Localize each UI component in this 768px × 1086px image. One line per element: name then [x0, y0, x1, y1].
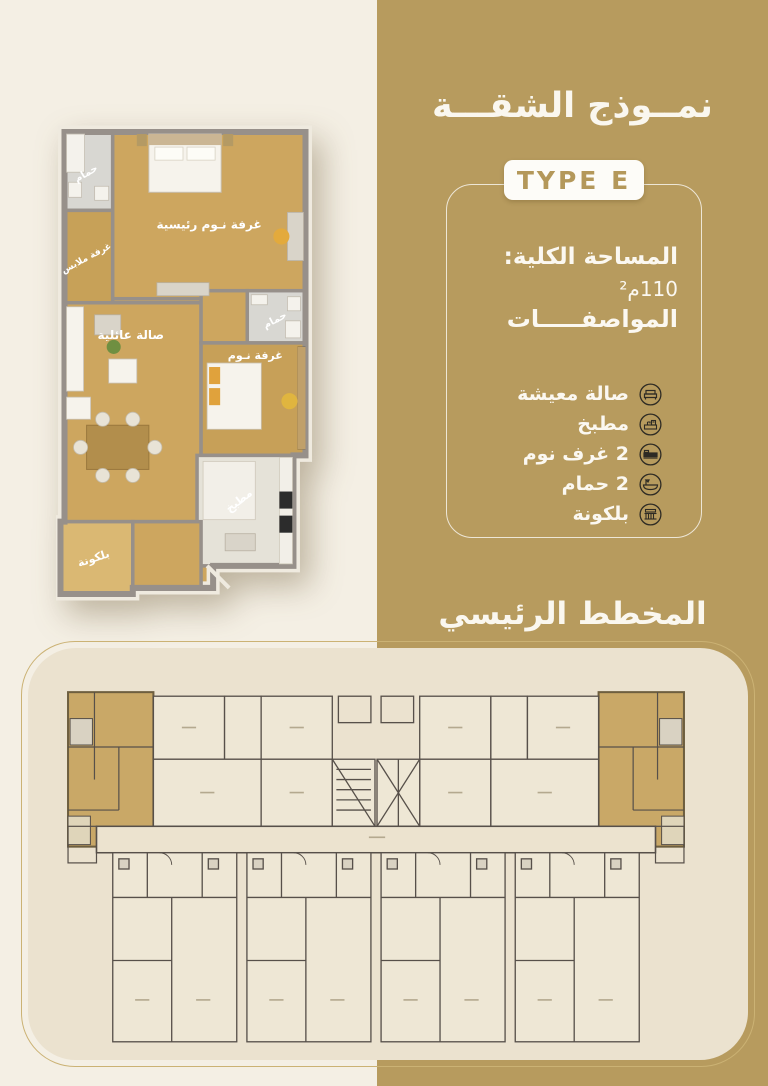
type-badge: TYPE E — [504, 160, 644, 200]
top-row-units — [153, 696, 598, 826]
elevator-core — [377, 759, 420, 826]
master-building-plan — [66, 688, 686, 1050]
brochure-page: { "colors": { "gold": "#b79b5e", "page_b… — [0, 0, 768, 1086]
highlighted-unit-right — [599, 692, 684, 846]
page-title: نمــوذج الشقـــة — [377, 86, 768, 126]
specs-outline-box — [446, 184, 702, 538]
corridor — [96, 826, 655, 852]
apartment-floor-plan: حمام غرفة ملابس غرفة نـوم رئيسية صالة عا… — [56, 124, 314, 604]
room-label-master-bedroom: غرفة نـوم رئيسية — [157, 217, 262, 232]
room-label-bedroom: غرفة نـوم — [228, 349, 283, 362]
room-label-family-hall: صالة عائلية — [97, 328, 164, 342]
stair-core — [332, 759, 375, 826]
master-plan-title: المخطط الرئيسي — [377, 596, 768, 632]
bottom-row-units — [113, 853, 639, 1042]
highlighted-unit-left — [68, 692, 153, 846]
